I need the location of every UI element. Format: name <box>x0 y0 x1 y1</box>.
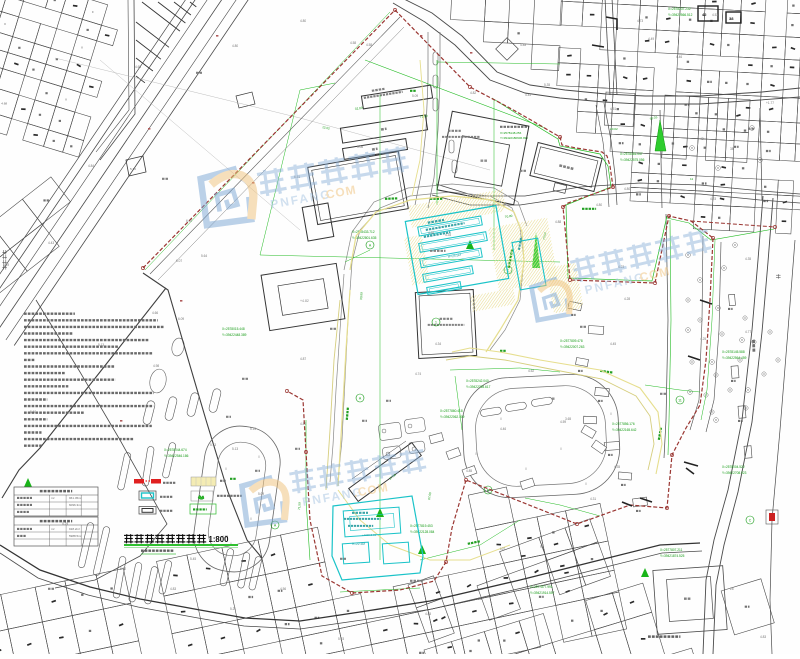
svg-text:X=2577856.176: X=2577856.176 <box>612 422 635 426</box>
svg-text:4.52: 4.52 <box>528 369 534 373</box>
svg-text:Y=39422448.389: Y=39422448.389 <box>222 333 247 337</box>
svg-text:5.23: 5.23 <box>338 637 344 641</box>
svg-text:X=2578237.232: X=2578237.232 <box>668 7 691 11</box>
svg-text:918.2m²: 918.2m² <box>69 527 80 531</box>
svg-text:Y=39422165.642: Y=39422165.642 <box>612 428 637 432</box>
svg-text:4.45: 4.45 <box>610 342 616 346</box>
svg-text:II: II <box>475 452 477 456</box>
svg-text:Y=39422566.512: Y=39422566.512 <box>668 13 693 17</box>
svg-text:6.09: 6.09 <box>178 317 184 321</box>
svg-text:42: 42 <box>702 12 707 17</box>
svg-text:4.87: 4.87 <box>300 422 306 426</box>
svg-text:20.02: 20.02 <box>610 127 618 131</box>
svg-text:Y=39422546.186: Y=39422546.186 <box>164 454 189 458</box>
svg-text:4.74: 4.74 <box>415 372 421 376</box>
svg-text:II: II <box>525 467 527 471</box>
svg-text:m²: m² <box>51 496 55 500</box>
svg-text:4.80: 4.80 <box>596 203 602 207</box>
svg-text:4.77: 4.77 <box>745 330 751 334</box>
svg-text:Y=39421914.557: Y=39421914.557 <box>530 591 555 595</box>
svg-text:4.80: 4.80 <box>232 44 238 48</box>
svg-text:4.31: 4.31 <box>590 497 596 501</box>
svg-text:X=2578044.674: X=2578044.674 <box>164 448 187 452</box>
svg-text:X=2577809.478: X=2577809.478 <box>560 339 583 343</box>
svg-text:11: 11 <box>678 399 682 403</box>
svg-text:H=22.5M: H=22.5M <box>352 542 365 546</box>
svg-text:5.08: 5.08 <box>357 145 363 149</box>
svg-text:4.84: 4.84 <box>88 164 94 168</box>
svg-text:X=2577807.211: X=2577807.211 <box>660 548 683 552</box>
svg-text:4.68: 4.68 <box>1 101 7 105</box>
svg-text:4.98: 4.98 <box>153 364 159 368</box>
svg-text:1: 1 <box>435 321 437 325</box>
svg-text:38: 38 <box>730 147 734 151</box>
svg-text:X=2577877.991: X=2577877.991 <box>530 585 553 589</box>
svg-text:4.55: 4.55 <box>428 231 434 235</box>
svg-text:X=2578081.047: X=2578081.047 <box>620 152 643 156</box>
svg-text:Y=39422765.617: Y=39422765.617 <box>466 385 491 389</box>
svg-text:4.88: 4.88 <box>555 220 561 224</box>
svg-text:5.35: 5.35 <box>544 83 550 87</box>
svg-text:4.83: 4.83 <box>760 635 766 639</box>
svg-text:4.56: 4.56 <box>280 587 286 591</box>
svg-text:4.49: 4.49 <box>648 37 654 41</box>
svg-text:4.80: 4.80 <box>624 187 630 191</box>
svg-text:X=2578433.712: X=2578433.712 <box>352 230 375 234</box>
svg-text:4.35: 4.35 <box>614 465 620 469</box>
svg-text:Y=39421874.525: Y=39421874.525 <box>660 554 685 558</box>
svg-text:30.00: 30.00 <box>359 292 364 300</box>
svg-text:II: II <box>585 482 587 486</box>
svg-text:5.32: 5.32 <box>120 567 126 571</box>
svg-text:42: 42 <box>700 137 704 141</box>
svg-text:4.83: 4.83 <box>170 587 176 591</box>
svg-text:Y=39422564.459: Y=39422564.459 <box>722 356 747 360</box>
svg-text:4.87: 4.87 <box>300 357 306 361</box>
svg-text:4.43: 4.43 <box>48 241 54 245</box>
svg-text:6.07: 6.07 <box>176 259 182 263</box>
svg-text:107: 107 <box>500 547 506 551</box>
svg-text:4.68: 4.68 <box>135 65 141 69</box>
svg-text:II: II <box>250 517 252 521</box>
svg-text:X=2578242.040: X=2578242.040 <box>466 379 489 383</box>
svg-text:38: 38 <box>729 16 734 21</box>
svg-text:5.64: 5.64 <box>201 254 207 258</box>
svg-text:4.34: 4.34 <box>435 342 441 346</box>
svg-text:+1.77: +1.77 <box>766 101 774 105</box>
svg-text:Y=39422708.923: Y=39422708.923 <box>722 471 747 475</box>
svg-text:X=2578145.588: X=2578145.588 <box>722 350 745 354</box>
svg-text:X=2577860.418: X=2577860.418 <box>440 409 463 413</box>
svg-text:71.50: 71.50 <box>297 502 302 510</box>
svg-text:4.45: 4.45 <box>525 93 531 97</box>
svg-text:5.13: 5.13 <box>210 443 216 447</box>
svg-text:4.58: 4.58 <box>350 41 356 45</box>
svg-text:4.53: 4.53 <box>712 13 718 17</box>
svg-text:4.73: 4.73 <box>637 19 643 23</box>
svg-text:4.58: 4.58 <box>366 43 372 47</box>
svg-text:18: 18 <box>478 597 482 601</box>
svg-text:4.35: 4.35 <box>745 257 751 261</box>
svg-text:94: 94 <box>540 545 544 549</box>
svg-text:II: II <box>560 447 562 451</box>
svg-text:3.65: 3.65 <box>565 417 571 421</box>
svg-text:4.46: 4.46 <box>500 427 506 431</box>
svg-text:Y=39422007.263: Y=39422007.263 <box>560 345 585 349</box>
svg-text:Y=39422180606.990: Y=39422180606.990 <box>500 136 528 140</box>
svg-text:4.25: 4.25 <box>700 337 706 341</box>
svg-text:5.15: 5.15 <box>250 427 256 431</box>
svg-text:4.85: 4.85 <box>425 612 431 616</box>
svg-text:4.66: 4.66 <box>152 311 158 315</box>
svg-text:II: II <box>500 417 502 421</box>
svg-text:X=2578148.256: X=2578148.256 <box>500 131 522 135</box>
svg-text:4.82: 4.82 <box>470 91 476 95</box>
svg-text:5.45: 5.45 <box>190 557 196 561</box>
svg-text:5.13: 5.13 <box>232 447 238 451</box>
svg-text:4.46: 4.46 <box>676 55 682 59</box>
svg-text:4.49: 4.49 <box>3 263 9 267</box>
svg-text:II: II <box>225 467 227 471</box>
svg-text:II: II <box>610 412 612 416</box>
svg-text:X=2578004.522: X=2578004.522 <box>722 465 745 469</box>
svg-text:X=2577819.453: X=2577819.453 <box>410 524 433 528</box>
svg-text:5.13: 5.13 <box>130 167 136 171</box>
svg-text:II: II <box>258 455 260 459</box>
svg-text:5.21: 5.21 <box>230 607 236 611</box>
svg-text:5.09: 5.09 <box>412 94 418 98</box>
svg-text:4.51: 4.51 <box>610 107 616 111</box>
svg-text:+1000.5.01: +1000.5.01 <box>362 533 377 537</box>
svg-text:6.02: 6.02 <box>186 219 192 223</box>
svg-text:X=2578015.448: X=2578015.448 <box>222 327 245 331</box>
svg-text:Y=39422062.009: Y=39422062.009 <box>440 415 465 419</box>
svg-text:28: 28 <box>730 587 734 591</box>
svg-text:m²: m² <box>51 527 55 531</box>
svg-text:+4.82: +4.82 <box>300 299 309 303</box>
svg-text:4.48: 4.48 <box>520 43 526 47</box>
svg-text:Y=39422575.056: Y=39422575.056 <box>620 158 645 162</box>
svg-text:4.34: 4.34 <box>445 233 451 237</box>
svg-text:4.85: 4.85 <box>466 469 472 473</box>
svg-text:4.23: 4.23 <box>710 197 716 201</box>
svg-text:1:800: 1:800 <box>209 535 230 544</box>
svg-text:11: 11 <box>690 177 693 181</box>
svg-text:6096.3m²: 6096.3m² <box>69 503 82 507</box>
svg-text:961.45m²: 961.45m² <box>69 496 82 500</box>
svg-text:Y=39422128.084: Y=39422128.084 <box>410 530 435 534</box>
svg-text:5988.5m²: 5988.5m² <box>69 534 82 538</box>
svg-text:5.25: 5.25 <box>62 522 68 526</box>
svg-text:4.80: 4.80 <box>300 19 306 23</box>
svg-text:4.28: 4.28 <box>624 297 630 301</box>
